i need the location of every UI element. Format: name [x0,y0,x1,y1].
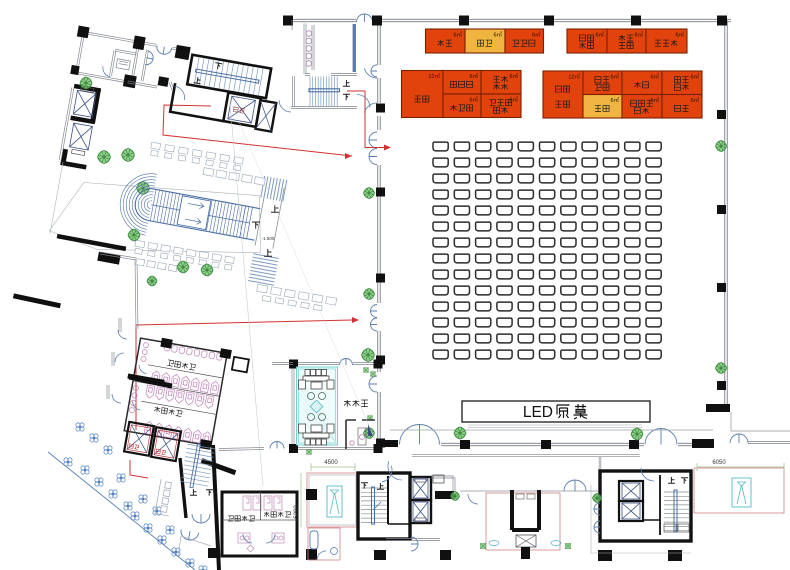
svg-text:6㎡: 6㎡ [634,31,643,39]
svg-text:12㎡: 12㎡ [568,73,580,81]
svg-text:6㎡: 6㎡ [610,73,619,81]
svg-text:6㎡: 6㎡ [675,31,684,39]
svg-text:6㎡: 6㎡ [690,96,699,104]
svg-text:6㎡: 6㎡ [595,31,604,39]
svg-text:6㎡: 6㎡ [469,72,478,80]
svg-text:6㎡: 6㎡ [469,96,478,104]
svg-text:6㎡: 6㎡ [610,96,619,104]
svg-text:6㎡: 6㎡ [509,72,518,80]
svg-text:12㎡: 12㎡ [428,72,440,80]
svg-text:6㎡: 6㎡ [532,31,541,39]
svg-text:6050: 6050 [712,460,726,466]
svg-text:LED: LED [523,404,553,421]
svg-text:5200: 5200 [294,505,300,519]
svg-text:6㎡: 6㎡ [690,73,699,81]
svg-text:6㎡: 6㎡ [493,31,502,39]
svg-text:6㎡: 6㎡ [650,73,659,81]
svg-text:4500: 4500 [324,460,338,466]
svg-text:6㎡: 6㎡ [453,31,462,39]
svg-text:-1.500: -1.500 [262,236,275,241]
